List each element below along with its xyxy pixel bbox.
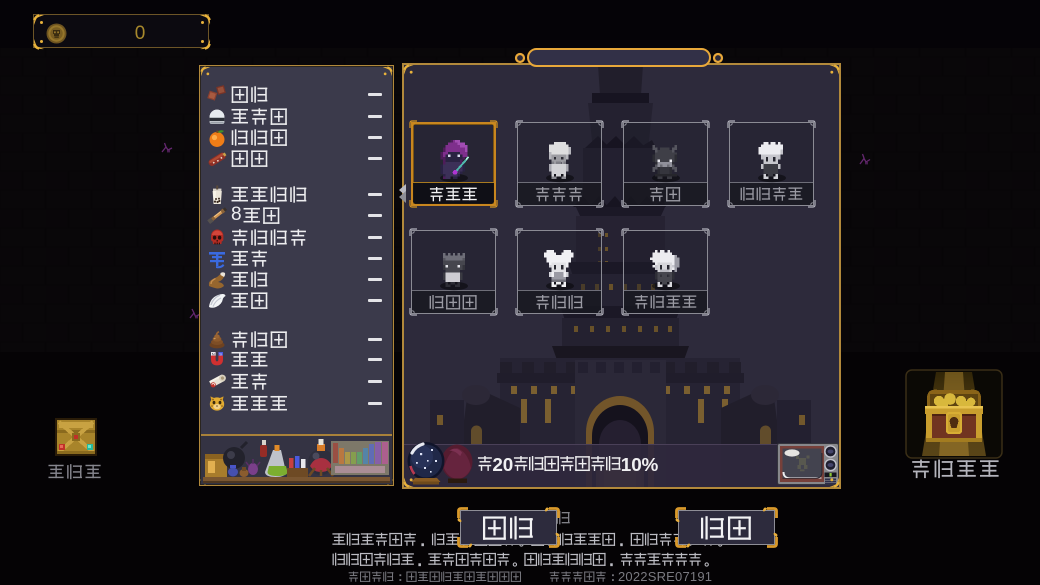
svg-text:N: N	[212, 351, 215, 356]
svg-text:S: S	[219, 351, 222, 356]
